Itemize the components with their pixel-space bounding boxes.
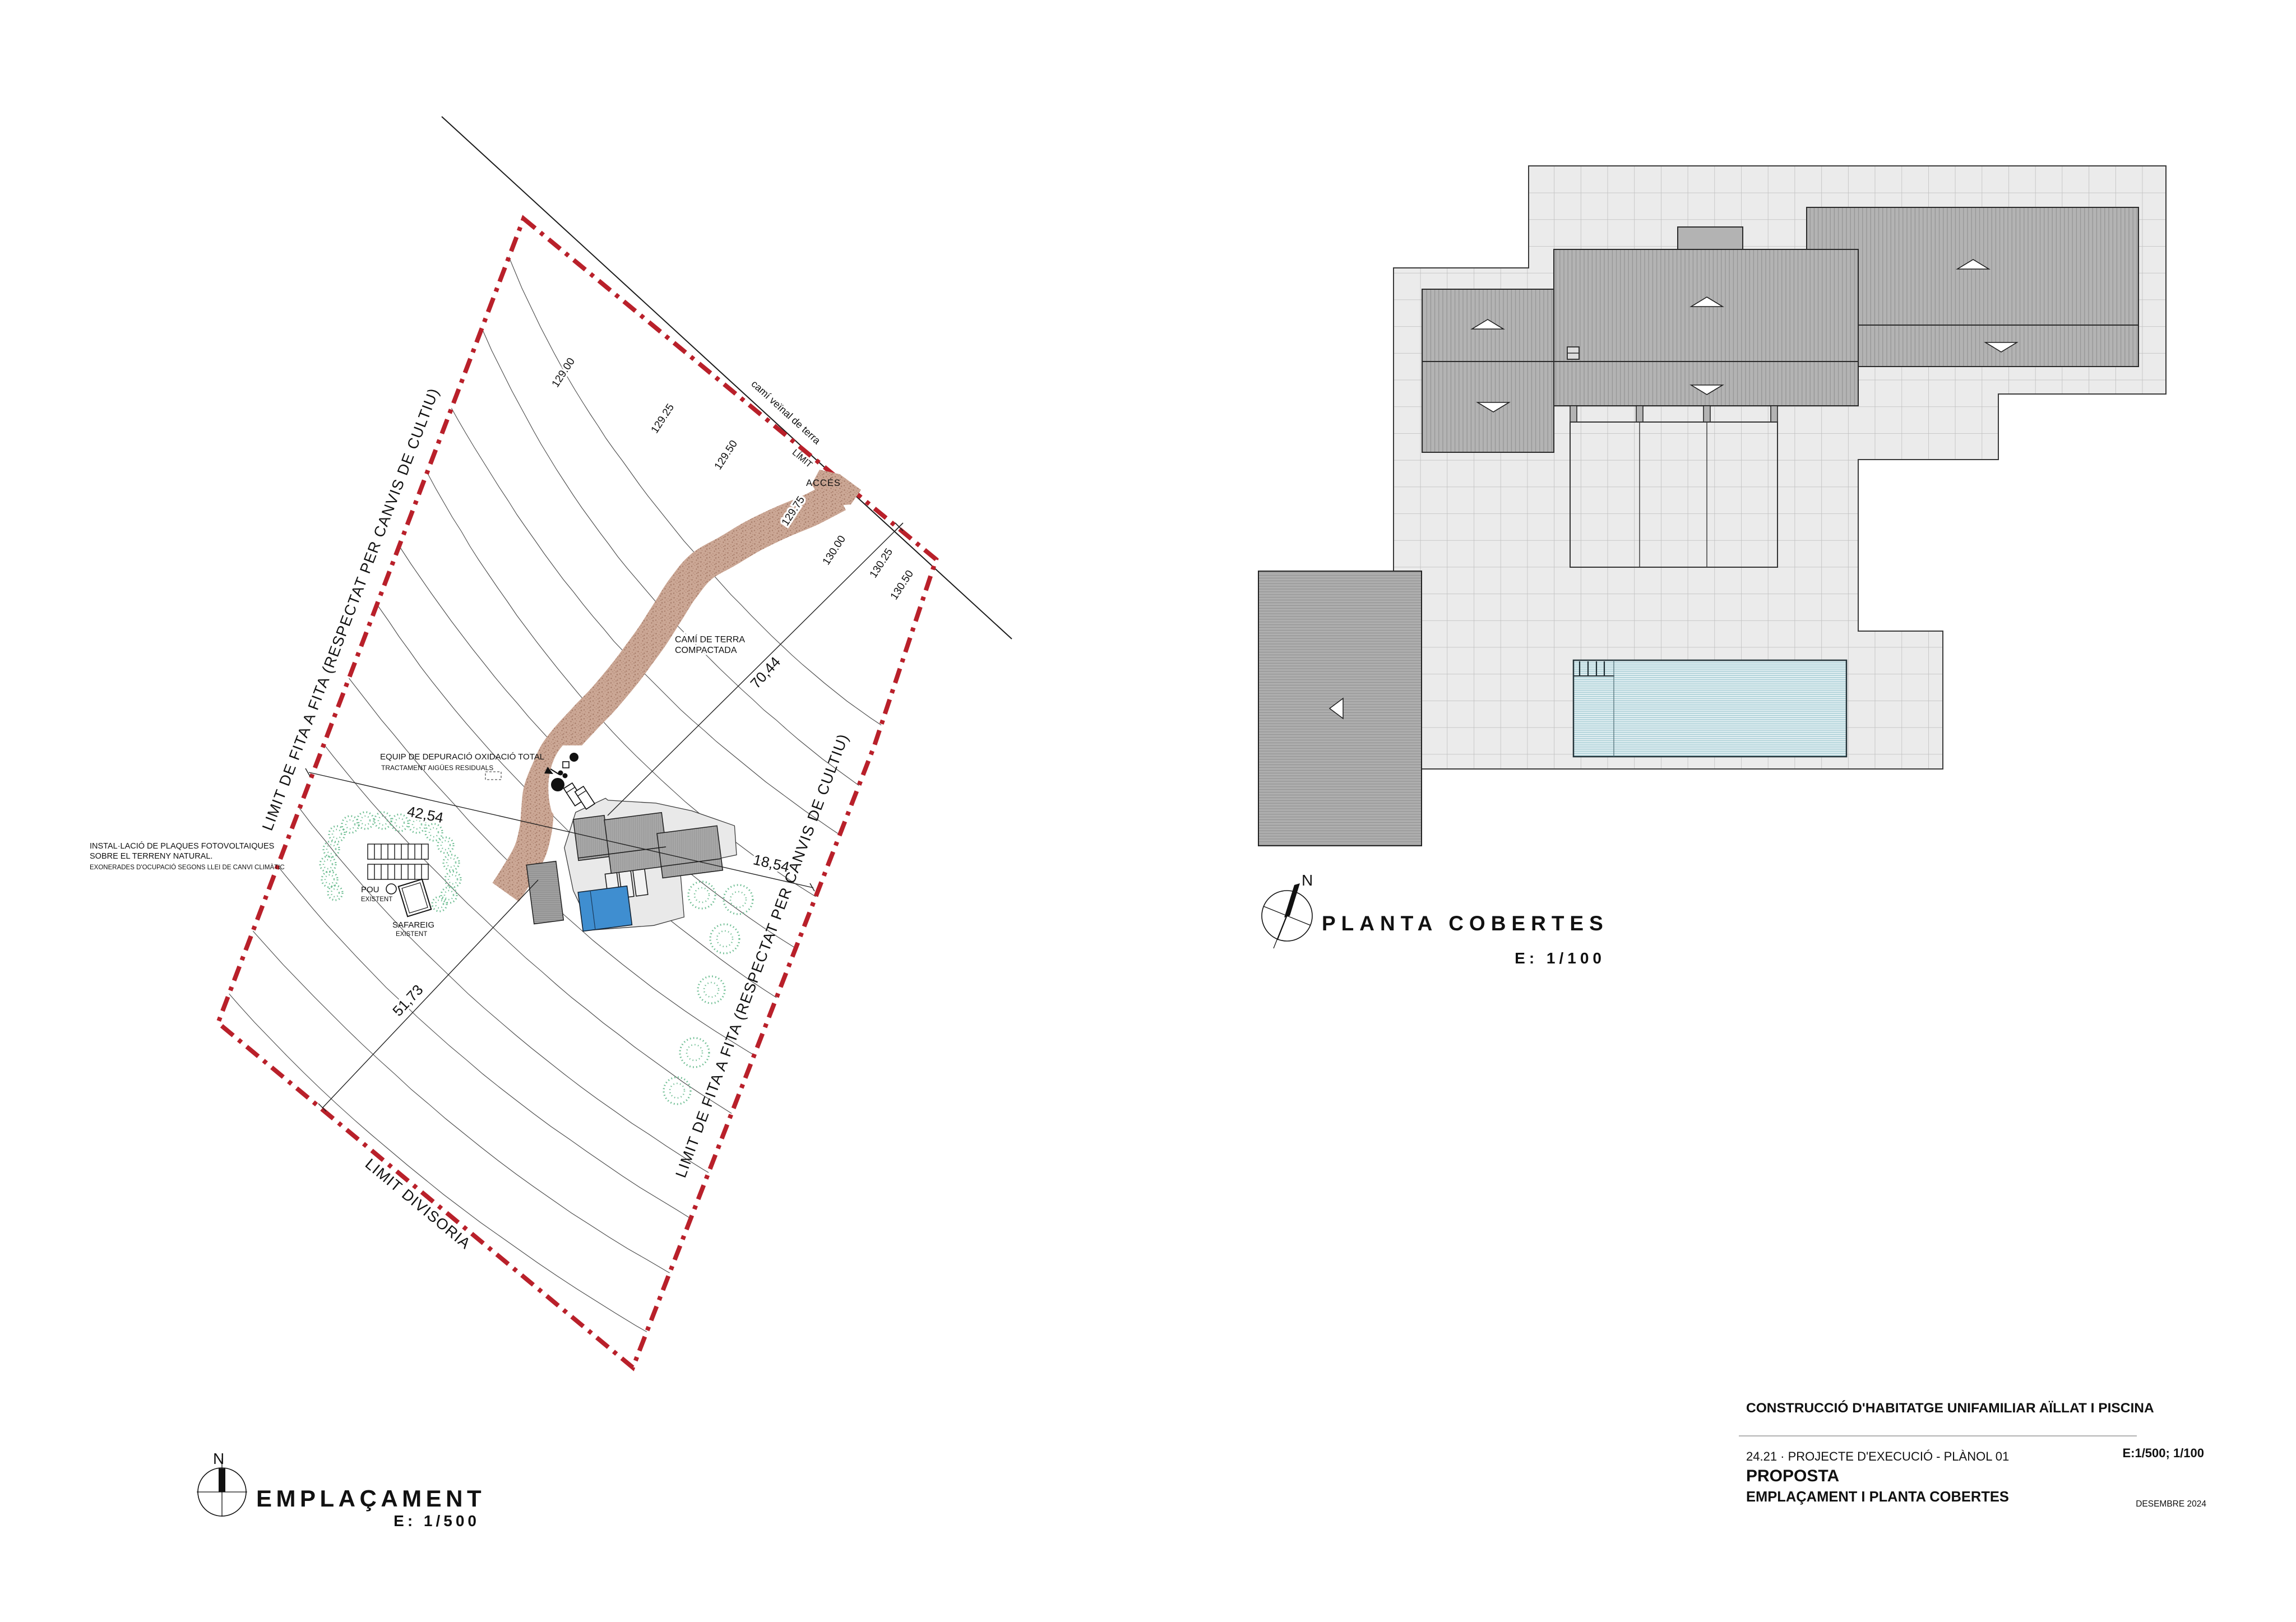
svg-text:E:1/500; 1/100: E:1/500; 1/100 (2122, 1446, 2204, 1460)
svg-text:COMPACTADA: COMPACTADA (675, 646, 737, 655)
svg-text:129.25: 129.25 (649, 402, 677, 435)
svg-text:EXISTENT: EXISTENT (361, 896, 392, 903)
svg-text:130.00: 130.00 (821, 534, 848, 567)
svg-text:SAFAREIG: SAFAREIG (392, 920, 434, 930)
svg-text:EQUIP DE DEPURACIÓ OXIDACIÓ TO: EQUIP DE DEPURACIÓ OXIDACIÓ TOTAL (380, 752, 544, 762)
svg-text:130.50: 130.50 (888, 568, 916, 602)
svg-text:CAMÍ DE TERRA: CAMÍ DE TERRA (675, 634, 745, 645)
svg-text:42,54: 42,54 (406, 803, 445, 826)
svg-text:130.25: 130.25 (868, 546, 895, 580)
svg-text:129.00: 129.00 (550, 356, 577, 390)
svg-text:EXONERADES D'OCUPACIÓ SEGONS L: EXONERADES D'OCUPACIÓ SEGONS LLEI DE CAN… (90, 864, 285, 871)
svg-text:EMPLAÇAMENT: EMPLAÇAMENT (256, 1485, 485, 1512)
svg-text:ACCÉS: ACCÉS (806, 478, 841, 488)
svg-text:LIMIT DIVISORIA: LIMIT DIVISORIA (362, 1155, 474, 1252)
svg-text:PROPOSTA: PROPOSTA (1746, 1467, 1839, 1485)
svg-text:EMPLAÇAMENT I PLANTA COBERTES: EMPLAÇAMENT I PLANTA COBERTES (1746, 1489, 2009, 1505)
svg-text:POU: POU (361, 885, 379, 895)
svg-text:24.21 · PROJECTE D'EXECUCIÓ -: 24.21 · PROJECTE D'EXECUCIÓ - PLÀNOL 01 (1746, 1449, 2009, 1463)
svg-text:EXISTENT: EXISTENT (396, 931, 427, 938)
svg-text:PLANTA COBERTES: PLANTA COBERTES (1322, 912, 1609, 935)
svg-text:TRACTAMENT AIGÜES RESIDUALS: TRACTAMENT AIGÜES RESIDUALS (381, 764, 493, 772)
svg-text:N: N (213, 1450, 224, 1467)
svg-text:LIMIT DE FITA A FITA (RESPECTA: LIMIT DE FITA A FITA (RESPECTAT PER CANV… (672, 731, 851, 1180)
svg-text:CONSTRUCCIÓ D'HABITATGE UNIFAM: CONSTRUCCIÓ D'HABITATGE UNIFAMILIAR AÏLL… (1746, 1400, 2154, 1416)
svg-text:E: 1/100: E: 1/100 (1515, 949, 1605, 967)
svg-text:SOBRE EL TERRENY NATURAL.: SOBRE EL TERRENY NATURAL. (90, 852, 212, 861)
svg-text:51,73: 51,73 (389, 981, 426, 1019)
svg-text:129.50: 129.50 (712, 438, 740, 472)
svg-text:N: N (1302, 872, 1313, 889)
svg-text:DESEMBRE 2024: DESEMBRE 2024 (2136, 1499, 2206, 1509)
svg-text:E: 1/500: E: 1/500 (394, 1512, 480, 1530)
svg-text:INSTAL·LACIÓ DE PLAQUES FOTOVO: INSTAL·LACIÓ DE PLAQUES FOTOVOLTAIQUES (90, 841, 274, 851)
